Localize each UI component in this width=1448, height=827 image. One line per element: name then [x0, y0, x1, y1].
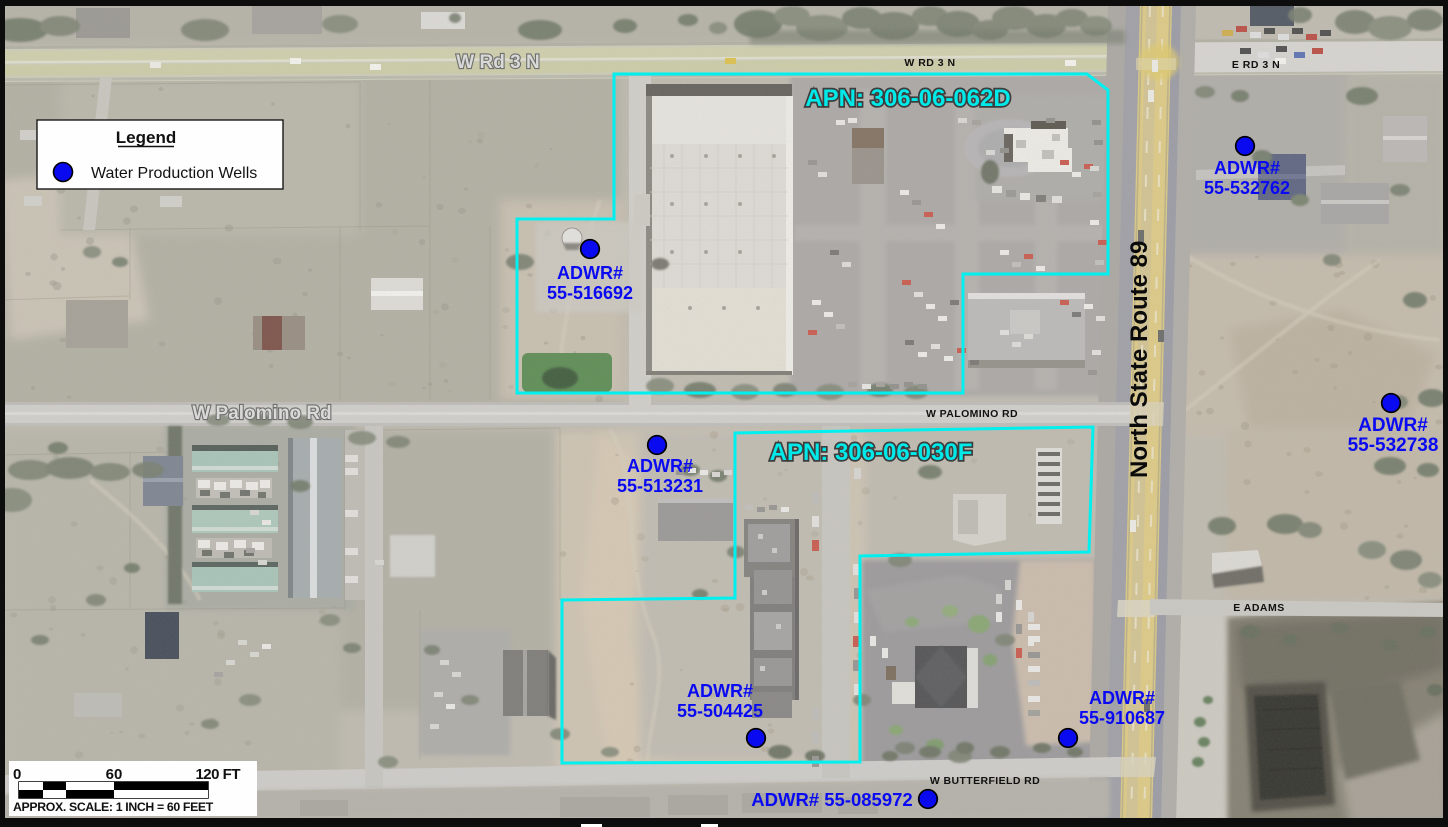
svg-text:60: 60 — [106, 766, 123, 783]
svg-text:55-513231: 55-513231 — [617, 476, 703, 496]
svg-text:APN: 306-06-062D: APN: 306-06-062D — [805, 85, 1010, 112]
svg-text:ADWR#: ADWR# — [1214, 158, 1280, 178]
svg-text:W BUTTERFIELD RD: W BUTTERFIELD RD — [930, 775, 1040, 787]
svg-text:ADWR#: ADWR# — [1358, 415, 1428, 436]
svg-text:W PALOMINO RD: W PALOMINO RD — [926, 408, 1018, 420]
svg-text:55-516692: 55-516692 — [547, 283, 633, 303]
svg-text:APN: 306-06-030F: APN: 306-06-030F — [770, 439, 973, 466]
svg-text:ADWR#: ADWR# — [1089, 688, 1155, 708]
svg-text:Legend: Legend — [116, 128, 176, 147]
svg-text:E ADAMS: E ADAMS — [1233, 602, 1285, 614]
svg-text:55-504425: 55-504425 — [677, 701, 763, 721]
svg-text:APPROX. SCALE: 1 INCH = 60 FEE: APPROX. SCALE: 1 INCH = 60 FEET — [13, 800, 214, 814]
svg-text:ADWR#: ADWR# — [687, 681, 753, 701]
svg-text:55-910687: 55-910687 — [1079, 708, 1165, 728]
svg-text:W Palomino Rd: W Palomino Rd — [192, 403, 331, 424]
svg-text:E RD 3 N: E RD 3 N — [1232, 59, 1280, 71]
svg-text:ADWR# 55-085972: ADWR# 55-085972 — [751, 789, 912, 810]
svg-text:0: 0 — [13, 766, 21, 783]
svg-text:ADWR#: ADWR# — [627, 456, 693, 476]
svg-text:W Rd 3 N: W Rd 3 N — [456, 52, 539, 73]
svg-text:Water Production Wells: Water Production Wells — [91, 165, 257, 182]
svg-text:North State Route 89: North State Route 89 — [1126, 241, 1153, 478]
svg-text:W RD 3 N: W RD 3 N — [904, 57, 955, 69]
svg-text:ADWR#: ADWR# — [557, 263, 623, 283]
svg-text:120 FT: 120 FT — [195, 766, 240, 783]
svg-text:55-532762: 55-532762 — [1204, 178, 1290, 198]
svg-text:55-532738: 55-532738 — [1348, 435, 1439, 456]
